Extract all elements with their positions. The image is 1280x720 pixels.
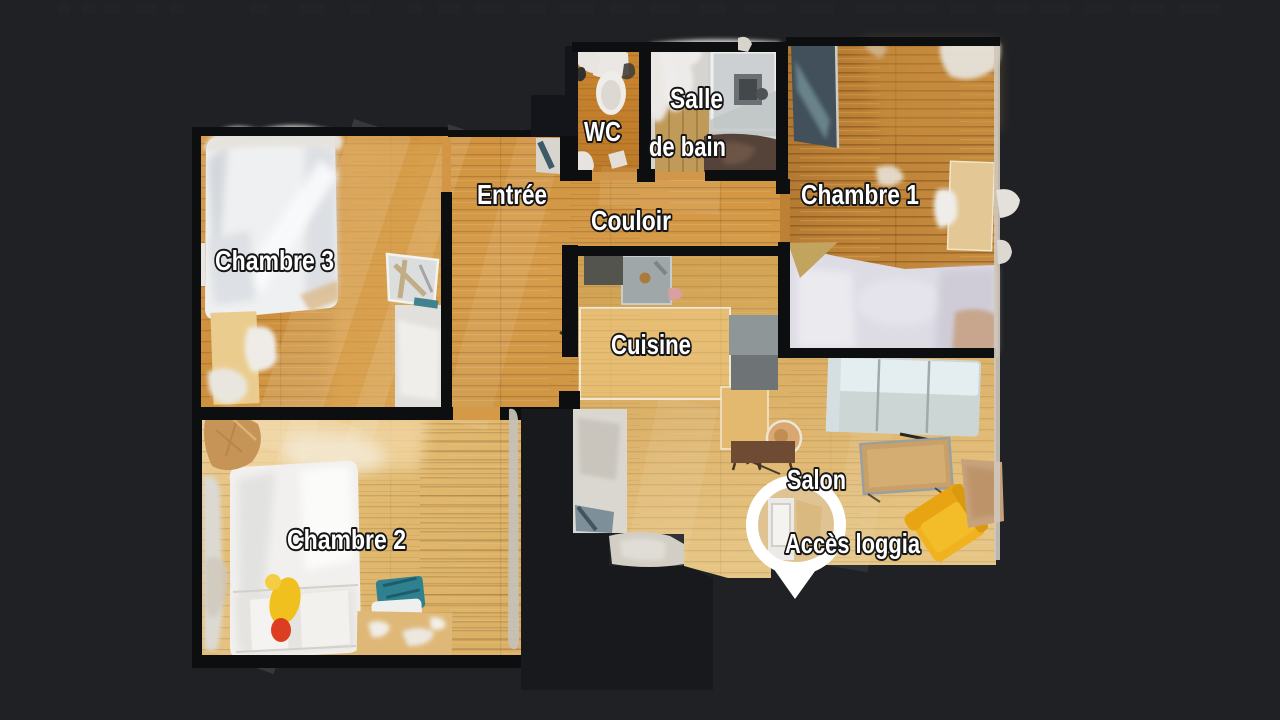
- svg-text:Salon: Salon: [787, 464, 846, 495]
- svg-text:Chambre 3: Chambre 3: [215, 245, 334, 276]
- svg-text:Cuisine: Cuisine: [611, 329, 691, 360]
- svg-text:Chambre 2: Chambre 2: [287, 524, 406, 555]
- svg-text:Entrée: Entrée: [477, 179, 547, 210]
- svg-text:de bain: de bain: [649, 131, 726, 162]
- svg-text:Salle: Salle: [670, 83, 723, 114]
- svg-text:Chambre 1: Chambre 1: [801, 179, 919, 210]
- svg-text:Couloir: Couloir: [591, 205, 671, 236]
- svg-text:Accès loggia: Accès loggia: [785, 528, 921, 559]
- svg-text:WC: WC: [584, 116, 621, 147]
